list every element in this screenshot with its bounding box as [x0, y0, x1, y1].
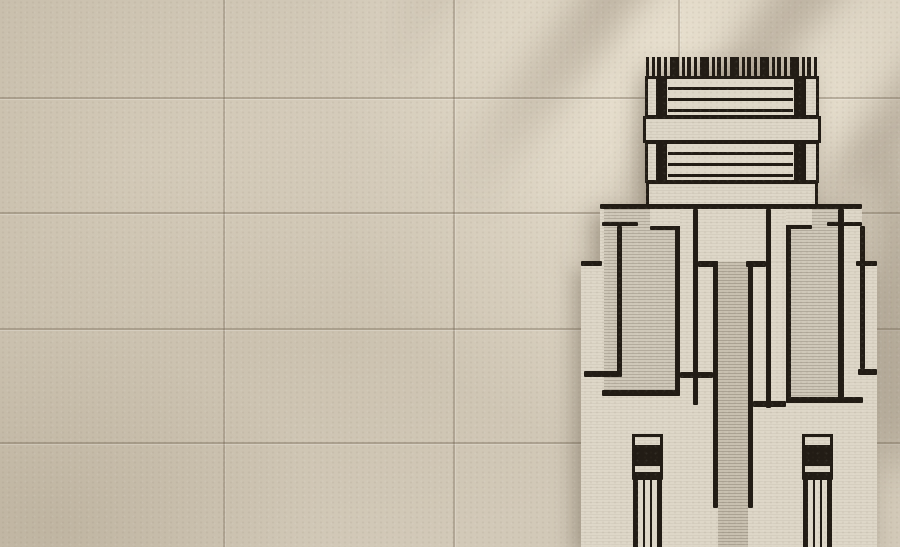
- right-column-cap: [802, 434, 833, 448]
- right-tower-notch: [786, 209, 812, 225]
- crown-cornice: [643, 116, 821, 143]
- right-outer-rect-bottom: [858, 369, 877, 375]
- right-bars-bottom: [753, 401, 786, 407]
- right-tower-left-edge: [786, 209, 791, 403]
- left-column-black-band: [632, 447, 663, 464]
- crown-base-band: [646, 181, 818, 207]
- left-tower-right-edge: [675, 209, 680, 396]
- right-outer-rect-side: [860, 226, 865, 369]
- right-tower-notch-line: [786, 225, 812, 229]
- left-step-outline: [581, 261, 602, 266]
- left-tower-notch: [650, 209, 680, 226]
- crown-lower-stripes: [668, 144, 793, 180]
- left-tower-notch-line: [650, 226, 680, 230]
- right-bar-line-a: [766, 209, 771, 408]
- left-bars-bottom: [680, 372, 713, 378]
- center-column-left-edge: [713, 262, 718, 508]
- left-column-pinstripes: [633, 480, 662, 547]
- right-chamfer: [746, 261, 766, 267]
- left-outer-rect-bottom: [584, 371, 622, 377]
- crown-upper-bar-right: [794, 78, 806, 116]
- center-column: [718, 262, 748, 547]
- left-tower-bottom: [602, 390, 680, 396]
- right-column-black-band: [802, 447, 833, 464]
- crown-upper-bar-left: [656, 78, 667, 116]
- left-outer-rect-side: [617, 226, 622, 372]
- art-deco-skyscraper-rug: [0, 0, 900, 547]
- right-tower-bottom: [786, 397, 863, 403]
- right-tower-right-edge: [838, 209, 844, 403]
- crown-lower-bar-left: [656, 143, 667, 181]
- left-column-cap: [632, 434, 663, 448]
- photo-scene: [0, 0, 900, 547]
- crown-fringe: [646, 57, 818, 78]
- right-outer-rect-top: [827, 222, 862, 226]
- crown-lower-bar-right: [794, 143, 806, 181]
- center-column-right-edge: [748, 262, 753, 508]
- left-tower-panel: [604, 209, 675, 390]
- right-column-pinstripes: [803, 480, 832, 547]
- right-tower-panel: [791, 209, 838, 397]
- crown-upper-stripes: [668, 79, 793, 115]
